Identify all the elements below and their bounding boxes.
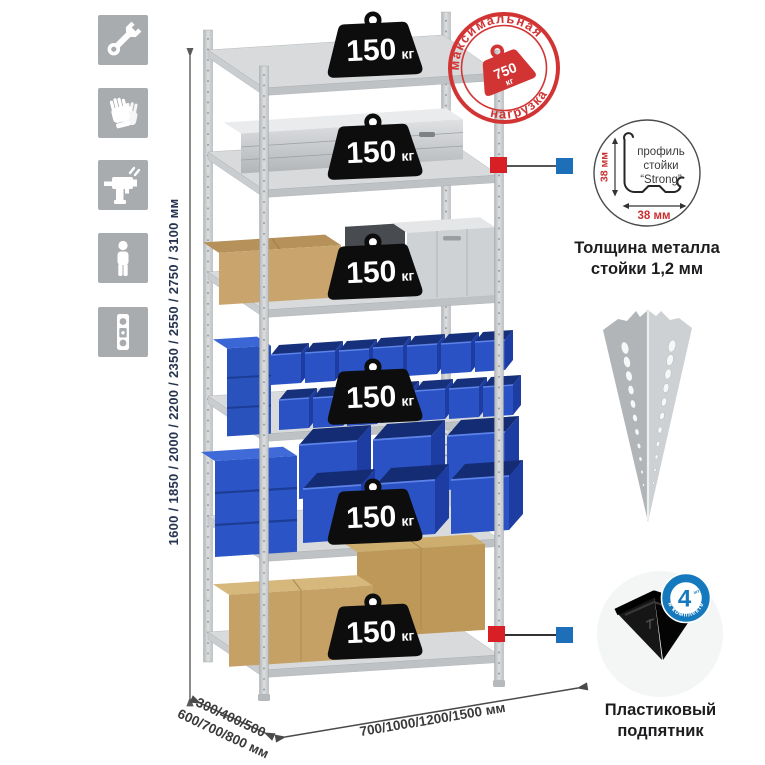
svg-text:стойки: стойки [643,160,678,172]
svg-text:кг: кг [401,392,415,409]
svg-text:150: 150 [346,135,397,170]
height-dimension-label: 1600 / 1850 / 2000 / 2200 / 2350 / 2550 … [166,94,186,650]
red-marker-top [490,157,507,173]
shelf-load-weight: 150 кг [310,229,441,305]
profile-caption: Толщина металла стойки 1,2 мм [566,238,728,280]
red-marker-bottom [488,626,505,642]
svg-text:кг: кг [401,627,415,644]
shelf-load-weight: 150 кг [310,7,441,83]
wrench-icon [98,15,148,65]
profile-dim-horizontal: 38 мм [637,210,670,222]
svg-text:4: 4 [678,586,692,613]
svg-text:кг: кг [401,267,415,284]
max-load-stamp: максимальная нагрузка 750 кг [442,6,566,130]
level-icon [98,307,148,357]
post-profile-callout: 38 мм 38 мм профиль стойки “Strong” [587,113,707,233]
profile-dim-vertical: 38 мм [599,152,611,182]
svg-text:“Strong”: “Strong” [640,174,682,186]
blue-marker-bottom [556,627,573,643]
blue-marker-top [556,158,573,174]
gloves-icon [98,88,148,138]
svg-text:кг: кг [401,45,415,62]
product-infographic: 1600 / 1850 / 2000 / 2200 / 2350 / 2550 … [0,0,765,765]
svg-text:150: 150 [346,500,397,535]
stamp-weight-icon: 750 кг [470,36,537,97]
shelf-load-weight: 150 кг [310,109,441,185]
svg-text:профиль: профиль [637,146,685,158]
included-count-badge: 4 штуки в комплекте [660,572,712,624]
drill-icon [98,160,148,210]
angle-post-illustration [588,296,708,534]
svg-text:кг: кг [401,147,415,164]
svg-text:150: 150 [346,255,397,290]
person-icon [98,233,148,283]
svg-text:кг: кг [401,512,415,529]
connector-line-top [500,165,558,167]
svg-text:150: 150 [346,615,397,650]
connector-line-bottom [498,634,558,636]
shelf-load-weight: 150 кг [310,589,441,665]
shelf-load-weight: 150 кг [310,354,441,430]
svg-text:150: 150 [346,380,397,415]
shelf-load-weight: 150 кг [310,474,441,550]
svg-text:150: 150 [346,33,397,68]
